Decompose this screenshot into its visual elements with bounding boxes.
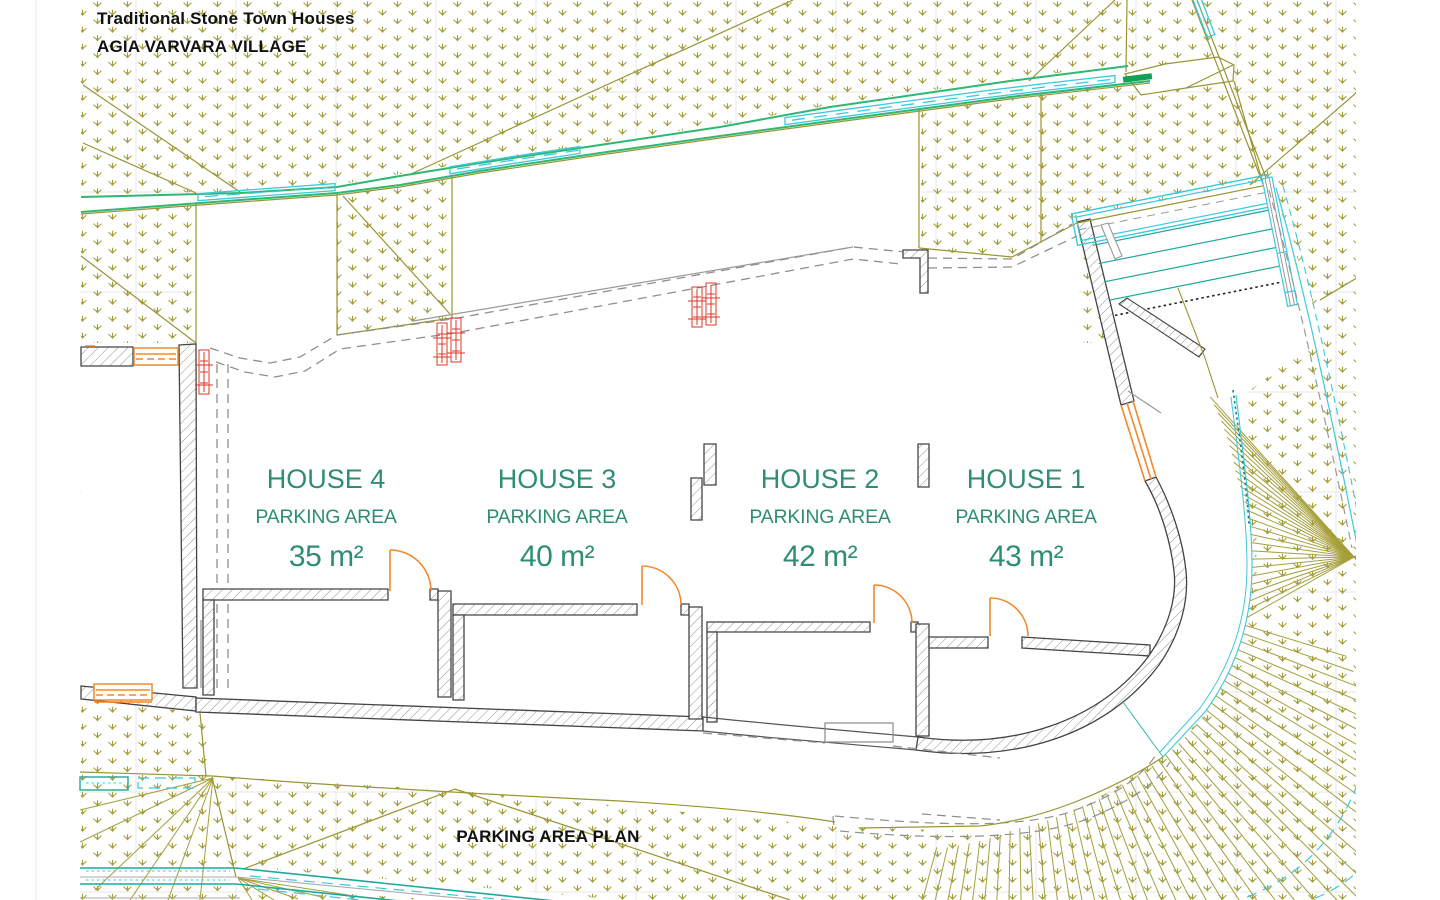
svg-text:HOUSE 1: HOUSE 1 [967, 464, 1086, 494]
svg-text:HOUSE 2: HOUSE 2 [761, 464, 880, 494]
svg-text:40 m²: 40 m² [520, 540, 595, 573]
svg-text:HOUSE 3: HOUSE 3 [498, 464, 617, 494]
svg-text:HOUSE 4: HOUSE 4 [267, 464, 386, 494]
svg-text:AGIA VARVARA VILLAGE: AGIA VARVARA VILLAGE [97, 37, 307, 56]
svg-text:Traditional Stone Town Houses: Traditional Stone Town Houses [97, 9, 355, 28]
svg-text:43 m²: 43 m² [989, 540, 1064, 573]
svg-text:PARKING AREA PLAN: PARKING AREA PLAN [456, 827, 639, 846]
svg-text:PARKING AREA: PARKING AREA [955, 506, 1097, 528]
svg-text:42 m²: 42 m² [783, 540, 858, 573]
svg-text:PARKING AREA: PARKING AREA [749, 506, 891, 528]
svg-text:35 m²: 35 m² [289, 540, 364, 573]
svg-text:PARKING AREA: PARKING AREA [486, 506, 628, 528]
svg-text:PARKING AREA: PARKING AREA [255, 506, 397, 528]
